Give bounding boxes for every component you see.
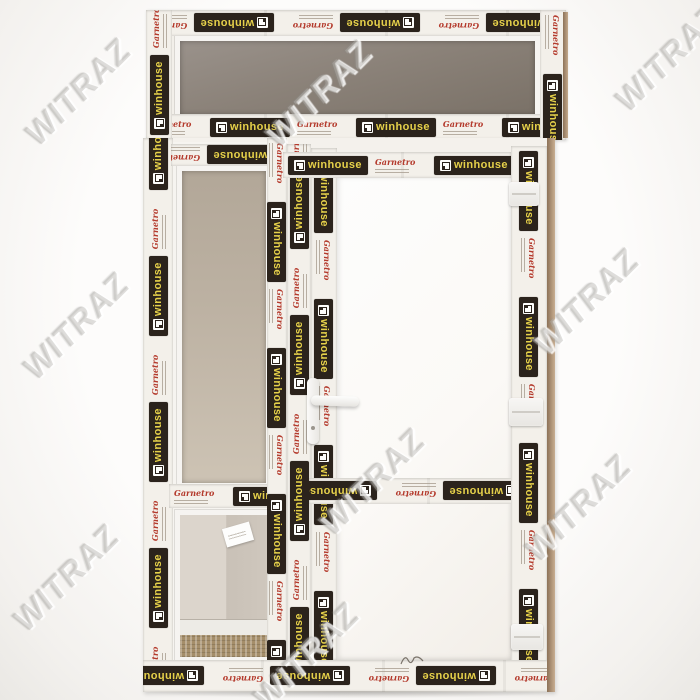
tape-micro-text-lines (445, 16, 479, 22)
tape-micro-text-lines (174, 498, 208, 504)
side-window-frosted-glass (177, 166, 271, 488)
tape-script-block: Garnetro (149, 489, 167, 541)
winhouse-logo-block: winhouse (520, 297, 539, 377)
tape-brand-label: winhouse (153, 262, 164, 316)
tape-script-label: Garnetro (297, 120, 337, 128)
room-carpet-floor-through-glass (180, 635, 268, 657)
tape-brand-label: winhouse (294, 613, 305, 667)
winhouse-window-icon (548, 80, 559, 91)
tape-micro-text-lines (171, 148, 200, 154)
winhouse-window-icon (524, 595, 535, 606)
tape-script-block: Garnetro (520, 238, 538, 290)
winhouse-logo-block: winhouse (340, 14, 420, 33)
winhouse-logo-block: winhouse (290, 461, 309, 541)
tape-script-block: Garnetro (520, 530, 538, 582)
winhouse-logo-block: winhouse (309, 482, 377, 501)
winhouse-logo-block: winhouse (149, 402, 168, 482)
tape-micro-text-lines (402, 484, 436, 490)
tape-script-label: Garnetro (529, 530, 537, 570)
door-hinge-top (509, 182, 539, 206)
winhouse-logo-block: winhouse (290, 169, 309, 249)
winhouse-window-icon (272, 354, 283, 365)
tape-brand-label: winhouse (524, 463, 535, 517)
winhouse-window-icon (153, 611, 164, 622)
winhouse-logo-block: winhouse (290, 315, 309, 395)
winhouse-window-icon (440, 160, 451, 171)
tape-script-label: Garnetro (443, 120, 483, 128)
door-handle-keyhole (311, 426, 315, 430)
tape-script-block: Garnetro (315, 240, 333, 292)
tape-script-label: Garnetro (223, 676, 263, 684)
tape-door-mid-band: winhouseGarnetrowinhouseGarnetrowinhouse… (309, 478, 523, 504)
tape-script-block: Garnetro (171, 146, 200, 164)
tape-script-label: Garnetro (375, 158, 415, 166)
tape-script-block: Garnetro (290, 256, 308, 308)
tape-script-block: Garnetro (150, 10, 168, 48)
tape-micro-text-lines (229, 669, 263, 675)
winhouse-window-icon (403, 18, 414, 29)
tape-script-label: Garnetro (292, 560, 300, 600)
tape-script-block: Garnetro (290, 548, 308, 600)
winhouse-logo-block: winhouse (194, 14, 274, 33)
tape-script-block: Garnetro (281, 14, 333, 32)
witraz-watermark: WITRAZ (19, 29, 137, 155)
winhouse-logo-block: winhouse (270, 667, 350, 686)
tape-script-label: Garnetro (369, 676, 409, 684)
winhouse-window-icon (479, 671, 490, 682)
winhouse-window-icon (319, 305, 330, 316)
witraz-watermark: WITRAZ (609, 0, 700, 121)
door-hinge-middle (509, 398, 543, 426)
tape-brand-label: winhouse (319, 173, 330, 227)
door-handle-lever (311, 395, 359, 407)
winhouse-window-icon (294, 160, 305, 171)
winhouse-window-icon (153, 465, 164, 476)
tape-brand-label: winhouse (153, 138, 164, 170)
tape-script-block: Garnetro (149, 197, 167, 249)
winhouse-window-icon (319, 597, 330, 608)
winhouse-window-icon (524, 157, 535, 168)
tape-script-label: Garnetro (152, 10, 160, 48)
winhouse-window-icon (153, 173, 164, 184)
door-hinge-bottom (511, 624, 543, 650)
winhouse-logo-block: winhouse (149, 548, 168, 628)
tape-script-label: Garnetro (151, 355, 159, 395)
tape-script-label: Garnetro (324, 532, 332, 572)
winhouse-logo-block: winhouse (315, 591, 334, 660)
tape-brand-label: winhouse (294, 321, 305, 375)
winhouse-window-icon (294, 232, 305, 243)
tape-door-top-rail: winhouseGarnetrowinhouseGarnetrowinhouse… (283, 152, 511, 178)
tape-script-label: Garnetro (174, 489, 214, 497)
winhouse-window-icon (333, 671, 344, 682)
tape-script-label: Garnetro (396, 491, 436, 499)
winhouse-window-icon (216, 122, 227, 133)
tape-script-label: Garnetro (277, 289, 285, 329)
tape-script-label: Garnetro (553, 15, 561, 55)
tape-micro-text-lines (297, 129, 331, 135)
tape-micro-text-lines (270, 435, 276, 469)
winhouse-window-icon (319, 451, 330, 462)
winhouse-window-icon (257, 18, 268, 29)
winhouse-logo-block: winhouse (149, 256, 168, 336)
winhouse-window-icon (272, 208, 283, 219)
tape-script-label: Garnetro (439, 23, 479, 31)
winhouse-window-icon (154, 118, 165, 129)
transom-glass (175, 36, 540, 120)
tape-brand-label: winhouse (449, 486, 503, 497)
tape-brand-label: winhouse (294, 467, 305, 521)
winhouse-logo-block: winhouse (434, 156, 511, 175)
tape-script-block: Garnetro (268, 581, 286, 633)
winhouse-logo-block: winhouse (268, 348, 287, 428)
tape-brand-label: winhouse (272, 368, 283, 422)
winhouse-window-icon (524, 303, 535, 314)
tape-micro-text-lines (301, 274, 307, 308)
winhouse-logo-block: winhouse (315, 299, 334, 379)
tape-micro-text-lines (301, 420, 307, 454)
winhouse-logo-block: winhouse (150, 55, 169, 135)
tape-micro-text-lines (160, 507, 166, 541)
tape-brand-label: winhouse (153, 554, 164, 608)
handwritten-mark (398, 652, 426, 668)
winhouse-logo-block: winhouse (288, 156, 368, 175)
tape-script-label: Garnetro (293, 23, 333, 31)
winhouse-window-icon (272, 646, 283, 657)
tape-brand-label: winhouse (346, 18, 400, 29)
winhouse-logo-block: winhouse (210, 118, 290, 137)
winhouse-window-icon (153, 319, 164, 330)
tape-script-block: Garnetro (384, 482, 436, 500)
tape-micro-text-lines (299, 16, 333, 22)
tape-micro-text-lines (522, 238, 528, 272)
transom-window: winhouseGarnetrowinhouseGarnetrowinhouse… (146, 10, 566, 140)
tape-brand-label: winhouse (308, 160, 362, 171)
winhouse-logo-block: winhouse (268, 494, 287, 574)
winhouse-logo-block: winhouse (416, 667, 496, 686)
tape-brand-label: winhouse (492, 18, 546, 29)
tape-brand-label: winhouse (548, 94, 559, 140)
tape-unit-left: GarnetrowinhouseGarnetrowinhouseGarnetro… (143, 138, 173, 692)
tape-brand-label: winhouse (272, 514, 283, 568)
winhouse-logo-block: winhouse (356, 118, 436, 137)
tape-script-block: Garnetro (544, 15, 562, 67)
witraz-watermark: WITRAZ (17, 263, 135, 389)
tape-brand-label: winhouse (200, 18, 254, 29)
tape-micro-text-lines (161, 14, 167, 48)
tape-script-block: Garnetro (375, 156, 427, 174)
door-window-unit: GarnetrowinhouseGarnetrowinhouseGarnetro… (143, 138, 555, 692)
tape-micro-text-lines (160, 215, 166, 249)
tape-micro-text-lines (546, 15, 552, 49)
winhouse-window-icon (360, 486, 371, 497)
tape-script-label: Garnetro (292, 268, 300, 308)
product-photo: winhouseGarnetrowinhouseGarnetrowinhouse… (0, 0, 700, 700)
tape-brand-label: winhouse (154, 61, 165, 115)
tape-brand-label: winhouse (422, 671, 476, 682)
winhouse-logo-block: winhouse (544, 74, 563, 140)
tape-micro-text-lines (317, 532, 323, 566)
tape-script-label: Garnetro (151, 209, 159, 249)
winhouse-window-icon (508, 122, 519, 133)
tape-brand-label: winhouse (524, 317, 535, 371)
tape-micro-text-lines (160, 361, 166, 395)
tape-unit-bottom: GarnetrowinhouseGarnetrowinhouseGarnetro… (143, 660, 555, 692)
winhouse-window-icon (362, 122, 373, 133)
winhouse-logo-block: winhouse (520, 443, 539, 523)
tape-micro-text-lines (443, 129, 477, 135)
tape-script-label: Garnetro (324, 386, 332, 426)
tape-script-block: Garnetro (268, 289, 286, 341)
tape-micro-text-lines (270, 289, 276, 323)
tape-brand-label: winhouse (319, 319, 330, 373)
door-handle-plate (307, 378, 319, 444)
tape-brand-label: winhouse (319, 611, 330, 660)
tape-script-block: Garnetro (357, 667, 409, 685)
tape-script-block: Garnetro (297, 118, 349, 136)
tape-brand-label: winhouse (294, 175, 305, 229)
tape-brand-label: winhouse (143, 671, 184, 682)
tape-script-label: Garnetro (324, 240, 332, 280)
tape-script-label: Garnetro (277, 581, 285, 621)
winhouse-logo-block: winhouse (149, 138, 168, 190)
tape-micro-text-lines (270, 143, 276, 177)
tape-brand-label: winhouse (376, 122, 430, 133)
unit-profile-edge (547, 138, 555, 692)
tape-script-label: Garnetro (292, 414, 300, 454)
door-leaf-panel (337, 178, 511, 660)
tape-script-block: Garnetro (268, 435, 286, 487)
tape-micro-text-lines (301, 566, 307, 600)
tape-micro-text-lines (317, 240, 323, 274)
witraz-watermark: WITRAZ (7, 515, 125, 641)
tape-micro-text-lines (270, 581, 276, 615)
winhouse-window-icon (187, 671, 198, 682)
tape-script-block: Garnetro (290, 402, 308, 454)
winhouse-window-icon (239, 491, 250, 502)
tape-script-block: Garnetro (315, 532, 333, 584)
winhouse-window-icon (294, 378, 305, 389)
room-baseboard-through-glass (180, 619, 268, 635)
tape-transom-left: winhouseGarnetrowinhouseGarnetro (146, 10, 172, 140)
tape-script-label: Garnetro (529, 238, 537, 278)
drop-shadow (150, 691, 556, 698)
tape-script-block: Garnetro (211, 667, 263, 685)
tape-script-label: Garnetro (151, 501, 159, 541)
tape-brand-label: winhouse (230, 122, 284, 133)
tape-script-label: Garnetro (171, 155, 200, 163)
tape-script-block: Garnetro (174, 487, 226, 505)
tape-script-block: Garnetro (149, 343, 167, 395)
winhouse-logo-block: winhouse (143, 667, 204, 686)
tape-brand-label: winhouse (309, 486, 357, 497)
winhouse-window-icon (294, 524, 305, 535)
tape-brand-label: winhouse (454, 160, 508, 171)
tape-script-block: Garnetro (427, 14, 479, 32)
tape-micro-text-lines (375, 669, 409, 675)
winhouse-window-icon (524, 449, 535, 460)
winhouse-logo-block: winhouse (268, 202, 287, 282)
tape-brand-label: winhouse (272, 222, 283, 276)
tape-transom-top: winhouseGarnetrowinhouseGarnetrowinhouse… (146, 10, 566, 36)
winhouse-window-icon (272, 500, 283, 511)
tape-script-block: Garnetro (443, 118, 495, 136)
tape-script-label: Garnetro (277, 435, 285, 475)
tape-mullion-a: GarnetrowinhouseGarnetrowinhouseGarnetro… (267, 138, 287, 692)
side-window-clear-glass (175, 510, 273, 662)
transom-profile-edge (563, 12, 568, 138)
tape-micro-text-lines (375, 167, 409, 173)
tape-brand-label: winhouse (276, 671, 330, 682)
tape-brand-label: winhouse (213, 150, 267, 161)
tape-brand-label: winhouse (153, 408, 164, 462)
tape-micro-text-lines (522, 530, 528, 564)
tape-transom-bottom: GarnetrowinhouseGarnetrowinhouseGarnetro… (146, 114, 566, 140)
